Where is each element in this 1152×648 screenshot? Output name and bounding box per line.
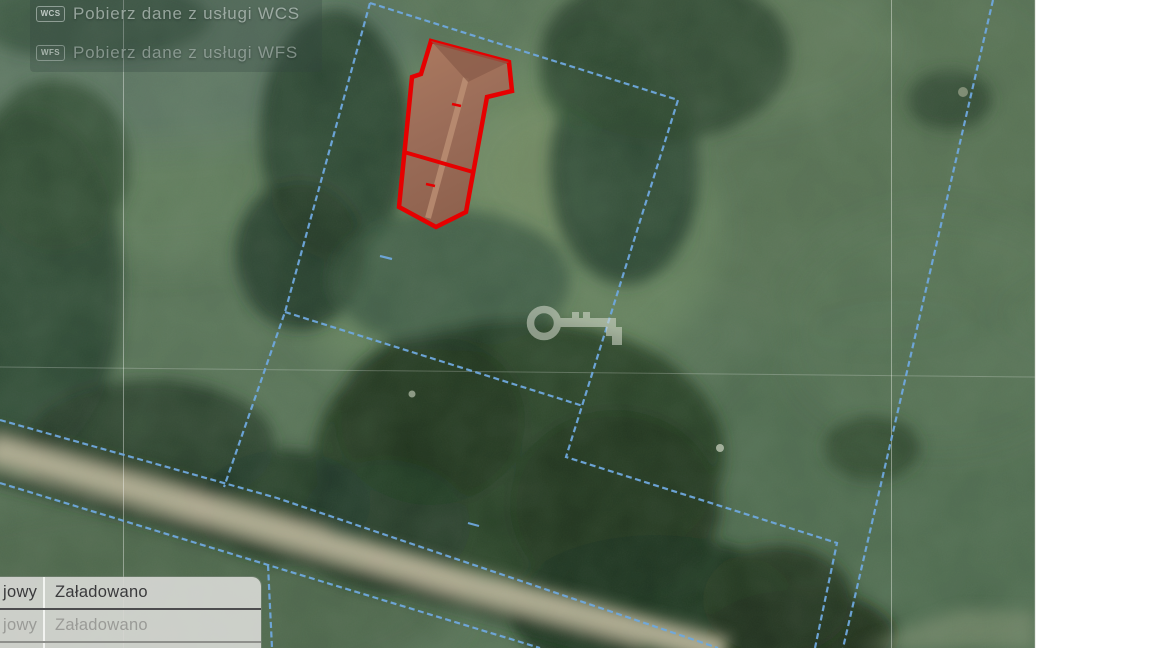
- wcs-service-icon: WCS: [36, 6, 65, 22]
- menu-item-label: Pobierz dane z usługi WFS: [73, 43, 298, 63]
- wfs-service-icon: WFS: [36, 45, 65, 61]
- context-menu: WCS Pobierz dane z usługi WCS WFS Pobier…: [30, 0, 322, 72]
- layer-status-row-clipped: [0, 643, 261, 648]
- map-blank-area: [1035, 0, 1152, 648]
- layer-name-cell: jowy: [0, 610, 45, 641]
- menu-item-label: Pobierz dane z usługi WCS: [73, 4, 300, 24]
- layer-status-cell: Załadowano: [45, 583, 148, 602]
- map-canvas[interactable]: [0, 0, 1152, 648]
- layer-status-row: jowy Załadowano: [0, 577, 261, 610]
- layer-status-cell: Załadowano: [45, 616, 148, 635]
- layer-name-cell: jowy: [0, 577, 45, 608]
- layer-status-panel: jowy Załadowano jowy Załadowano: [0, 577, 261, 648]
- menu-item-download-wfs[interactable]: WFS Pobierz dane z usługi WFS: [36, 34, 322, 72]
- menu-item-download-wcs[interactable]: WCS Pobierz dane z usługi WCS: [36, 0, 322, 33]
- application-window: WCS Pobierz dane z usługi WCS WFS Pobier…: [0, 0, 1152, 648]
- layer-status-row: jowy Załadowano: [0, 610, 261, 643]
